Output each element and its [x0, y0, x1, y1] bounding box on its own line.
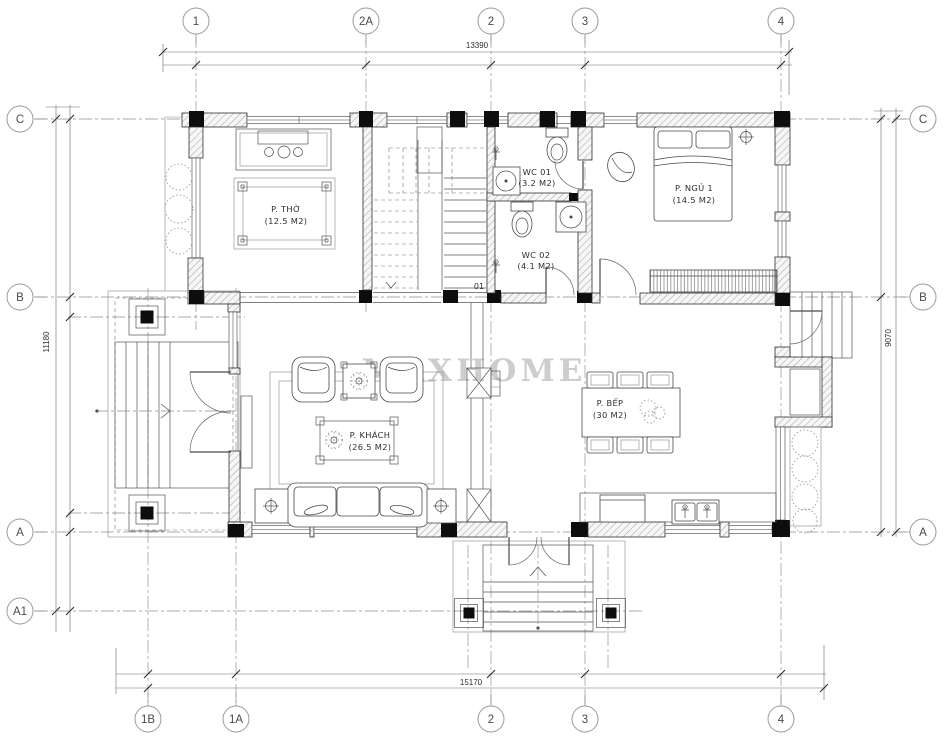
grid-bubble-top-1: 1: [193, 16, 199, 28]
dim-left-value: 11180: [42, 331, 51, 353]
grid-bubble-left-A: A: [16, 527, 24, 539]
altar-cabinet: [236, 129, 331, 170]
wardrobe: [650, 270, 777, 292]
grid-bubble-left-C: C: [16, 114, 24, 126]
left-porch: [95, 291, 240, 537]
room-area: (3.2 M2): [518, 178, 555, 188]
flower-icon: [326, 432, 343, 449]
bush-icon: [793, 509, 817, 533]
room-divider: [467, 303, 500, 522]
grid-bubble-bottom-4: 4: [778, 714, 785, 726]
bush-icon: [165, 195, 193, 223]
room-label: WC 02: [522, 250, 551, 260]
room-area: (30 M2): [593, 410, 627, 420]
room-label: P. BẾP: [597, 397, 624, 408]
grid-bubble-right-B: B: [919, 292, 927, 304]
grid-bubble-left-B: B: [16, 292, 24, 304]
grid-bubble-right-A: A: [919, 527, 927, 539]
dimension-right: 9070: [874, 108, 903, 537]
room-area: (12.5 M2): [265, 216, 308, 226]
grid-bubble-right-C: C: [919, 114, 927, 126]
grid-bubble-bottom-1B: 1B: [141, 714, 155, 726]
bush-icon: [792, 430, 818, 456]
room-area: (4.1 M2): [517, 261, 554, 271]
dimension-top: 13390: [159, 40, 793, 95]
dim-bottom-value: 15170: [460, 678, 483, 687]
cabinet: [600, 495, 645, 522]
grid-bubble-bottom-1A: 1A: [229, 714, 243, 726]
floor-plan-svg: 13390 11180 9070 15170 MAXHOME: [0, 0, 948, 743]
dim-right-value: 9070: [884, 329, 893, 347]
room-label: P. NGỦ 1: [675, 182, 713, 193]
dimension-bottom: 15170: [116, 645, 828, 700]
porch-column: [597, 599, 626, 628]
porch-column: [455, 599, 484, 628]
grid-bubble-left-A1: A1: [13, 606, 27, 618]
bush-icon: [166, 164, 192, 190]
room-area: (26.5 M2): [349, 442, 392, 452]
worship-room: P. THỜ (12.5 M2): [234, 129, 335, 249]
dimension-left: 11180: [42, 105, 80, 632]
grid-bubble-top-3: 3: [582, 16, 588, 28]
tv-console: [241, 396, 252, 468]
room-label: P. THỜ: [271, 203, 301, 214]
entrance-porch: [453, 541, 626, 632]
grid-bubble-top-2A: 2A: [359, 16, 373, 28]
wc02: WC 02 (4.1 M2): [492, 202, 586, 295]
bush-icon: [166, 228, 192, 254]
bedroom: P. NGỦ 1 (14.5 M2): [600, 127, 777, 295]
room-label: P. KHÁCH: [350, 429, 391, 440]
kitchen-dining: P. BẾP (30 M2): [580, 372, 776, 524]
staircase: 01: [374, 127, 487, 291]
bush-icon: [792, 484, 818, 510]
grid-bubble-bottom-3: 3: [582, 714, 588, 726]
lamp-icon: [738, 129, 754, 145]
room-label: WC 01: [523, 167, 552, 177]
planter: [790, 427, 821, 526]
room-area: (14.5 M2): [673, 195, 716, 205]
side-steps: [790, 292, 852, 358]
dim-top-value: 13390: [466, 41, 489, 50]
grid-bubble-top-2: 2: [488, 16, 494, 28]
bush-icon: [792, 456, 818, 482]
grid-bubble-top-4: 4: [778, 16, 785, 28]
floor-plan-page: 13390 11180 9070 15170 MAXHOME: [0, 0, 948, 743]
wc01: WC 01 (3.2 M2): [492, 128, 583, 195]
grid-bubble-bottom-2: 2: [488, 714, 494, 726]
door-tag: 01: [474, 282, 484, 291]
chair: [603, 148, 639, 186]
